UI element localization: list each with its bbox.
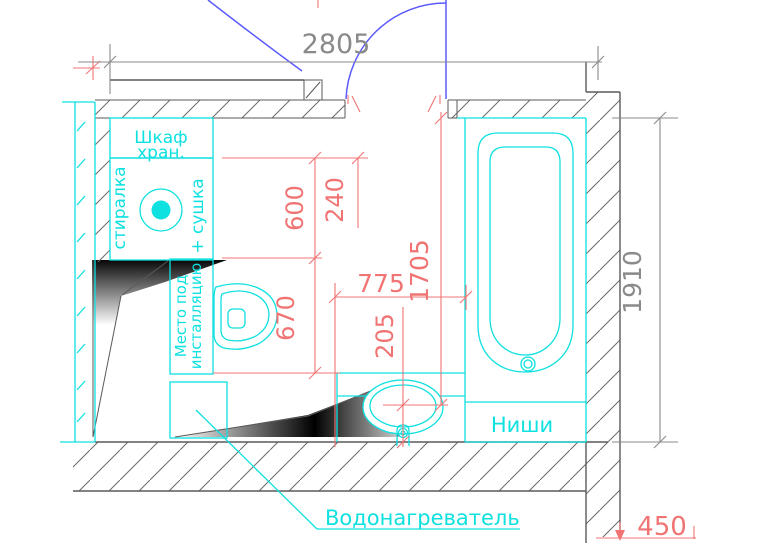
top-right-wall-hatch — [448, 100, 586, 118]
water-heater-label: Водонагреватель — [325, 506, 520, 530]
niches-label: Ниши — [491, 413, 553, 437]
bathtub — [457, 118, 586, 442]
washer-door — [152, 201, 171, 220]
water-heater-box — [170, 382, 227, 438]
dryer-label: + сушка — [188, 178, 208, 253]
bathtub-drain — [521, 357, 535, 371]
left-edge-marks — [73, 56, 100, 80]
floorplan-drawing: 2805 1910 600 240 670 1705 205 775 450 Ш… — [0, 0, 770, 544]
left-wall-hatch — [95, 118, 110, 262]
left-shadow-wedge — [92, 260, 227, 437]
dim-450: 450 — [637, 512, 687, 542]
washer-label: стиралка — [110, 166, 130, 249]
dim-right-height: 1910 — [618, 250, 647, 314]
top-left-wall-hatch — [95, 100, 345, 118]
dim-1705: 1705 — [405, 239, 434, 303]
bathtub-inner — [490, 147, 560, 355]
dim-205: 205 — [371, 313, 399, 359]
dim-670: 670 — [272, 295, 300, 341]
installation-label-line2: инсталляцию — [187, 263, 205, 370]
right-wall-hatch — [586, 92, 620, 537]
tile-marks — [77, 122, 85, 422]
bathtub-outer — [478, 133, 573, 372]
left-wall-finish — [60, 102, 95, 442]
cabinet-label-line2: хран. — [137, 143, 185, 163]
toilet-drain — [228, 309, 245, 328]
dim-600: 600 — [281, 185, 309, 231]
door-swing-arc-left — [208, 0, 302, 71]
toilet — [214, 284, 277, 349]
bottom-wall-hatch — [73, 442, 586, 491]
dim-top-width: 2805 — [302, 29, 371, 60]
dim-775: 775 — [357, 269, 405, 298]
cad-floorplan-canvas: 2805 1910 600 240 670 1705 205 775 450 Ш… — [0, 0, 770, 544]
dim-240: 240 — [321, 177, 349, 223]
